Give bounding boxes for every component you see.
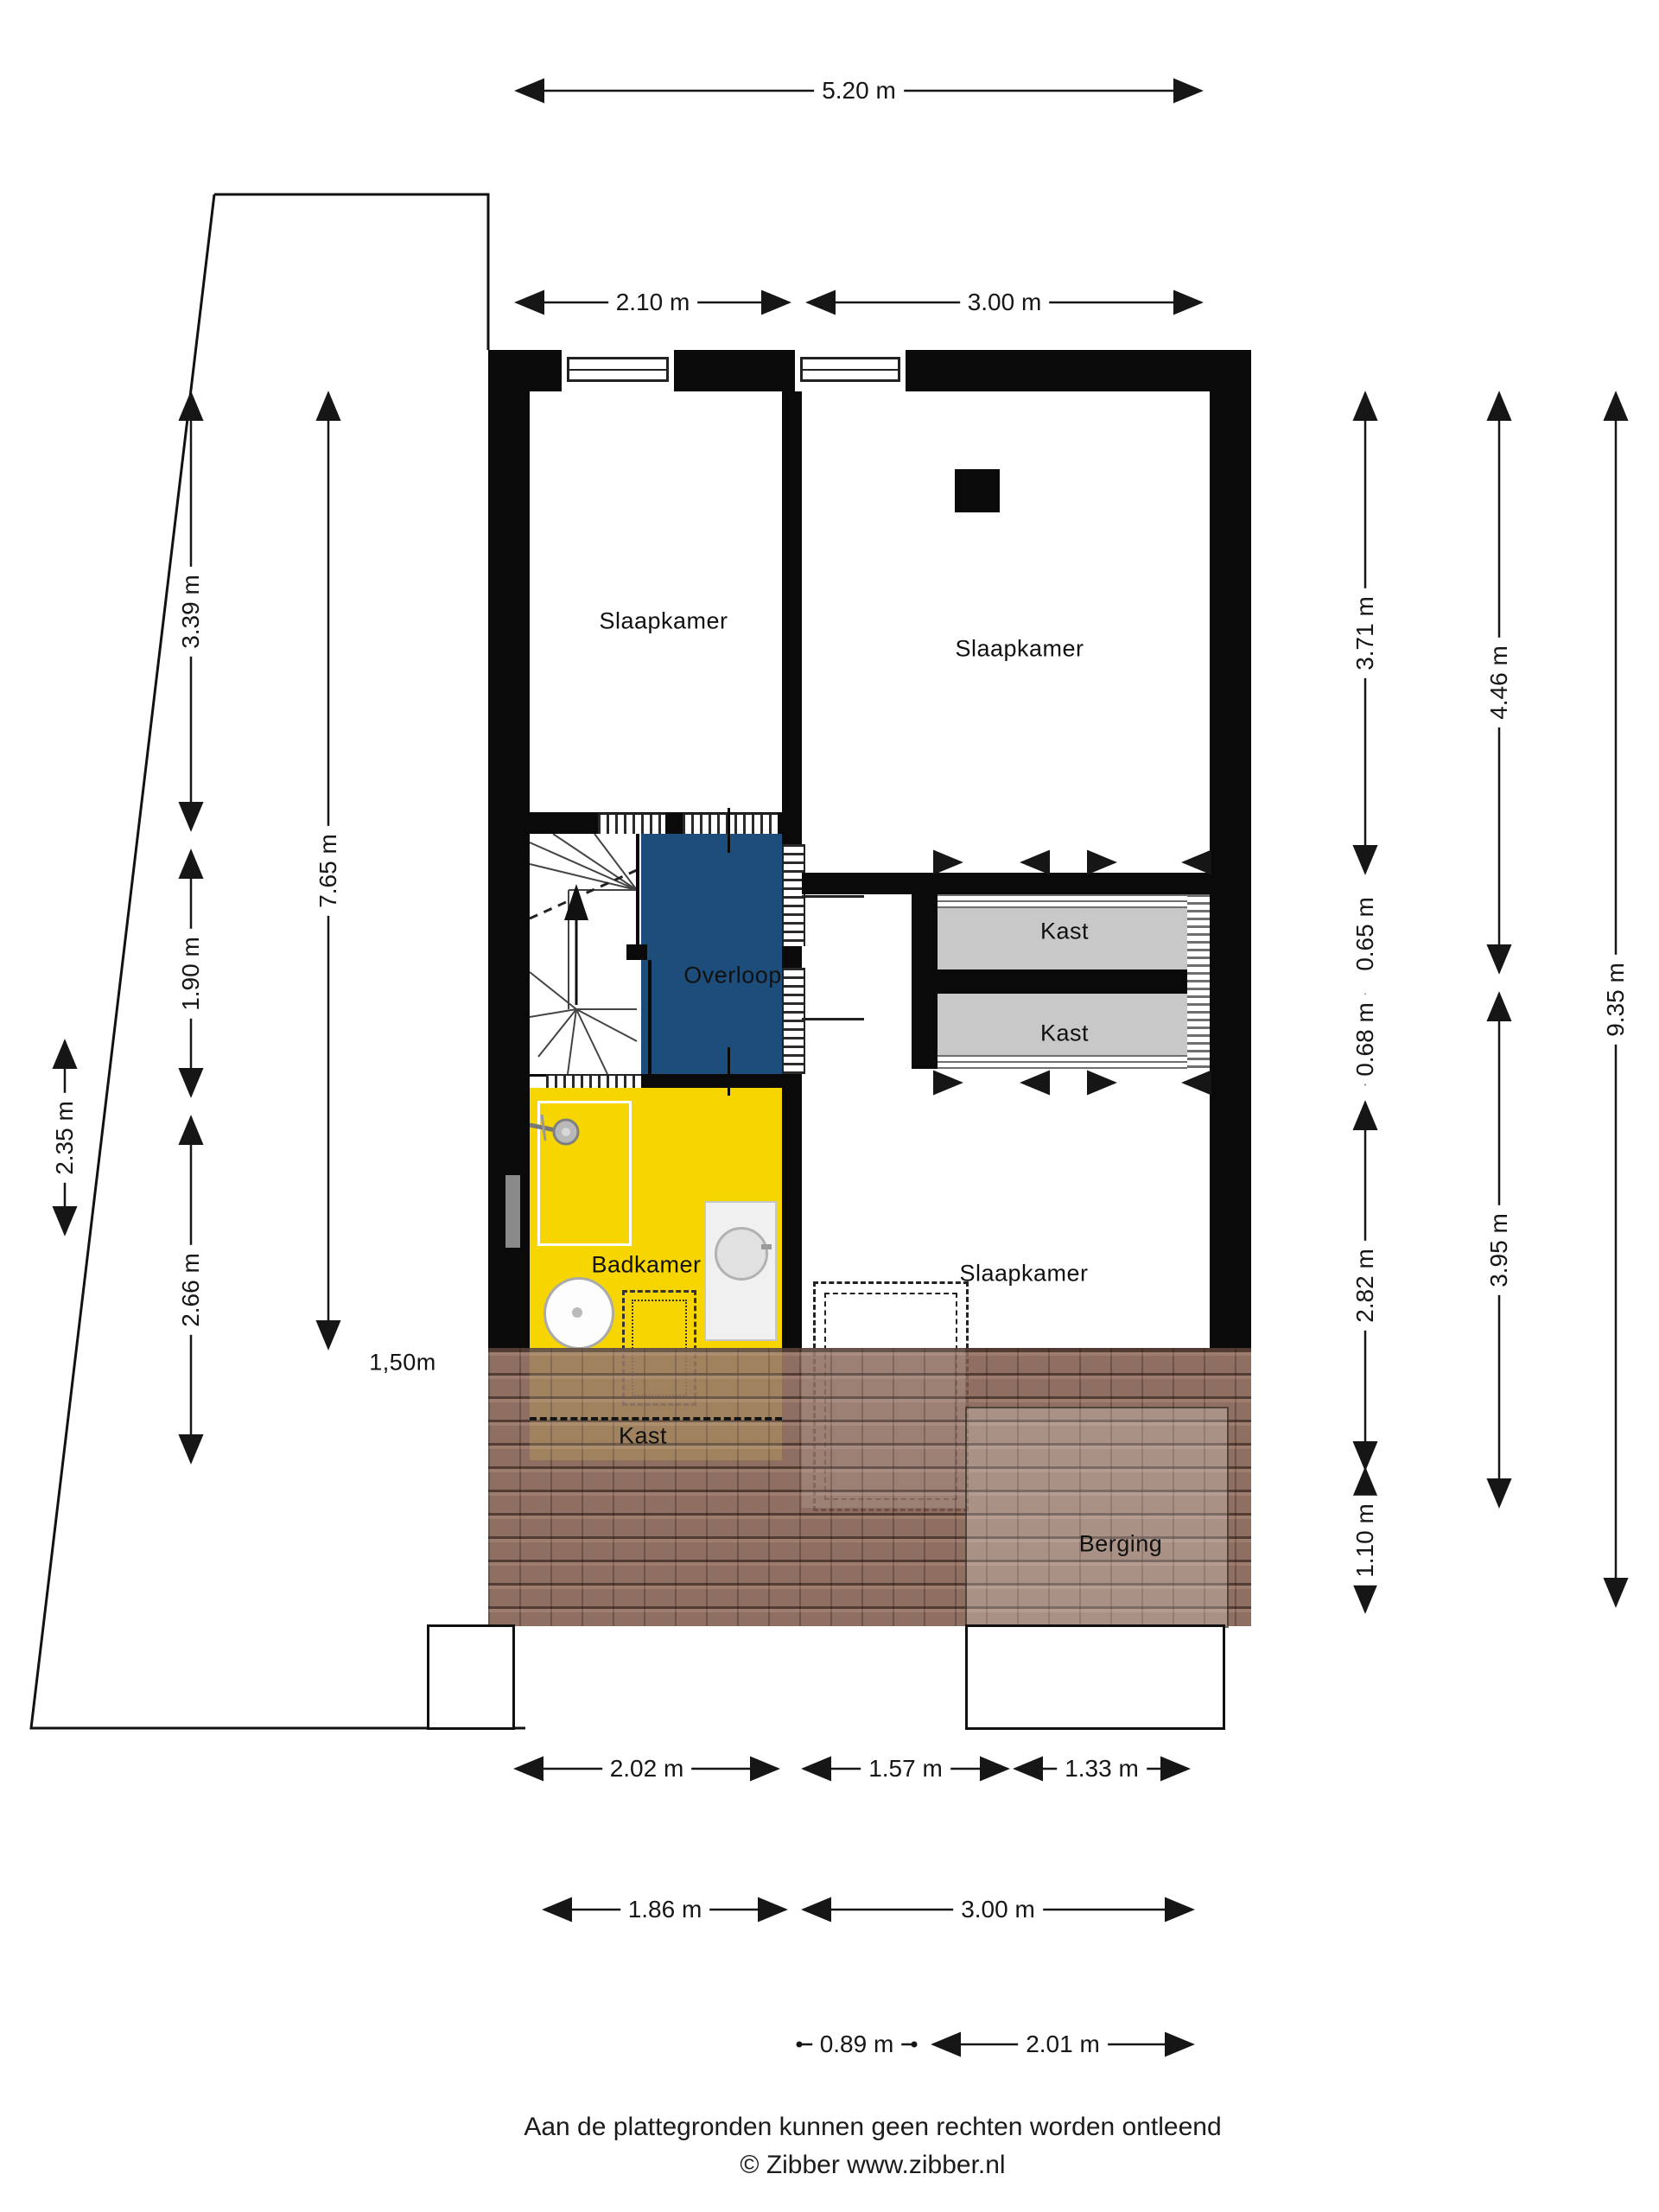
- room-label-kast-roof: Kast: [619, 1423, 667, 1450]
- dimension-label: 1.86 m: [620, 1896, 710, 1923]
- dimension-label: 3.39 m: [177, 567, 205, 657]
- room-label-overloop: Overloop: [683, 963, 782, 989]
- dimension-label: 3.71 m: [1351, 588, 1379, 678]
- dimension-label: 2.82 m: [1351, 1241, 1379, 1331]
- dimension-label: 2.35 m: [51, 1093, 79, 1183]
- footer: Aan de plattegronden kunnen geen rechten…: [524, 2108, 1221, 2183]
- room-label-slaapkamer-left: Slaapkamer: [599, 608, 728, 635]
- room-label-berging: Berging: [1079, 1531, 1163, 1558]
- dimension-label: 1.33 m: [1057, 1755, 1147, 1783]
- dimension-label: 2.66 m: [177, 1245, 205, 1335]
- dimension-lines: [0, 0, 1659, 2212]
- dimension-label: 1.10 m: [1351, 1496, 1379, 1586]
- room-label-kast-1: Kast: [1040, 918, 1089, 945]
- floorplan-canvas: 5.20 m2.10 m3.00 m3.39 m1.90 m2.66 m2.35…: [0, 0, 1659, 2212]
- dimension-label: 5.20 m: [814, 77, 904, 105]
- footer-disclaimer: Aan de plattegronden kunnen geen rechten…: [524, 2108, 1221, 2146]
- dimension-label: 1.90 m: [177, 929, 205, 1019]
- dimension-label: 2.02 m: [602, 1755, 692, 1783]
- dimension-label: 7.65 m: [315, 826, 342, 916]
- dimension-label: 3.00 m: [960, 289, 1050, 316]
- dimension-label: 2.10 m: [608, 289, 698, 316]
- room-label-slaapkamer-bottom: Slaapkamer: [959, 1261, 1088, 1287]
- dimension-label: 4.46 m: [1485, 638, 1513, 728]
- dimension-label: 2.01 m: [1018, 2031, 1108, 2058]
- dimension-label: 0.65 m: [1351, 889, 1379, 979]
- kast-door-arrows: [942, 862, 1203, 1083]
- dimension-label: 3.95 m: [1485, 1205, 1513, 1295]
- room-label-kast-2: Kast: [1040, 1020, 1089, 1047]
- annotation-height-line: 1,50m: [369, 1350, 436, 1376]
- dimension-label: 9.35 m: [1602, 955, 1630, 1045]
- room-label-badkamer: Badkamer: [591, 1252, 701, 1279]
- room-label-slaapkamer-right: Slaapkamer: [955, 636, 1084, 663]
- dimension-label: 0.68 m: [1351, 995, 1379, 1084]
- dimension-label: 3.00 m: [953, 1896, 1043, 1923]
- footer-copyright: © Zibber www.zibber.nl: [524, 2146, 1221, 2184]
- dimension-label: 0.89 m: [812, 2031, 902, 2058]
- dimension-label: 1.57 m: [861, 1755, 950, 1783]
